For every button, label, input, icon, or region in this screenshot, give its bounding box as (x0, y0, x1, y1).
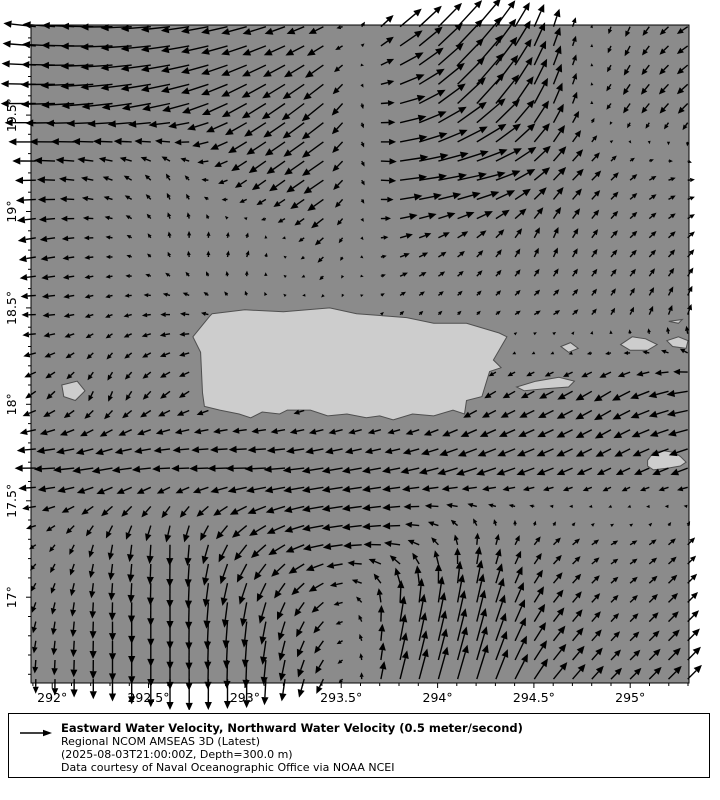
svg-text:292.5°: 292.5° (127, 690, 169, 705)
svg-text:18.5°: 18.5° (4, 291, 19, 325)
svg-text:293.5°: 293.5° (320, 690, 362, 705)
svg-text:17°: 17° (4, 586, 19, 608)
svg-text:19.5°: 19.5° (4, 98, 19, 132)
legend-model: Regional NCOM AMSEAS 3D (Latest) (61, 735, 523, 748)
legend-timestamp: (2025-08-03T21:00:00Z, Depth=300.0 m) (61, 748, 523, 761)
svg-text:18°: 18° (4, 393, 19, 415)
quiver-map-svg: 292°292.5°293°293.5°294°294.5°295°17°17.… (0, 0, 720, 710)
svg-text:293°: 293° (230, 690, 260, 705)
legend-box: Eastward Water Velocity, Northward Water… (8, 713, 710, 778)
svg-text:294.5°: 294.5° (513, 690, 555, 705)
svg-text:19°: 19° (4, 200, 19, 222)
svg-text:295°: 295° (615, 690, 645, 705)
svg-text:17.5°: 17.5° (4, 484, 19, 518)
svg-text:294°: 294° (423, 690, 453, 705)
svg-text:292°: 292° (37, 690, 67, 705)
legend-title: Eastward Water Velocity, Northward Water… (61, 722, 523, 735)
velocity-quiver-chart: 292°292.5°293°293.5°294°294.5°295°17°17.… (0, 0, 720, 710)
legend-credit: Data courtesy of Naval Oceanographic Off… (61, 761, 523, 774)
reference-arrow-icon (19, 728, 53, 738)
